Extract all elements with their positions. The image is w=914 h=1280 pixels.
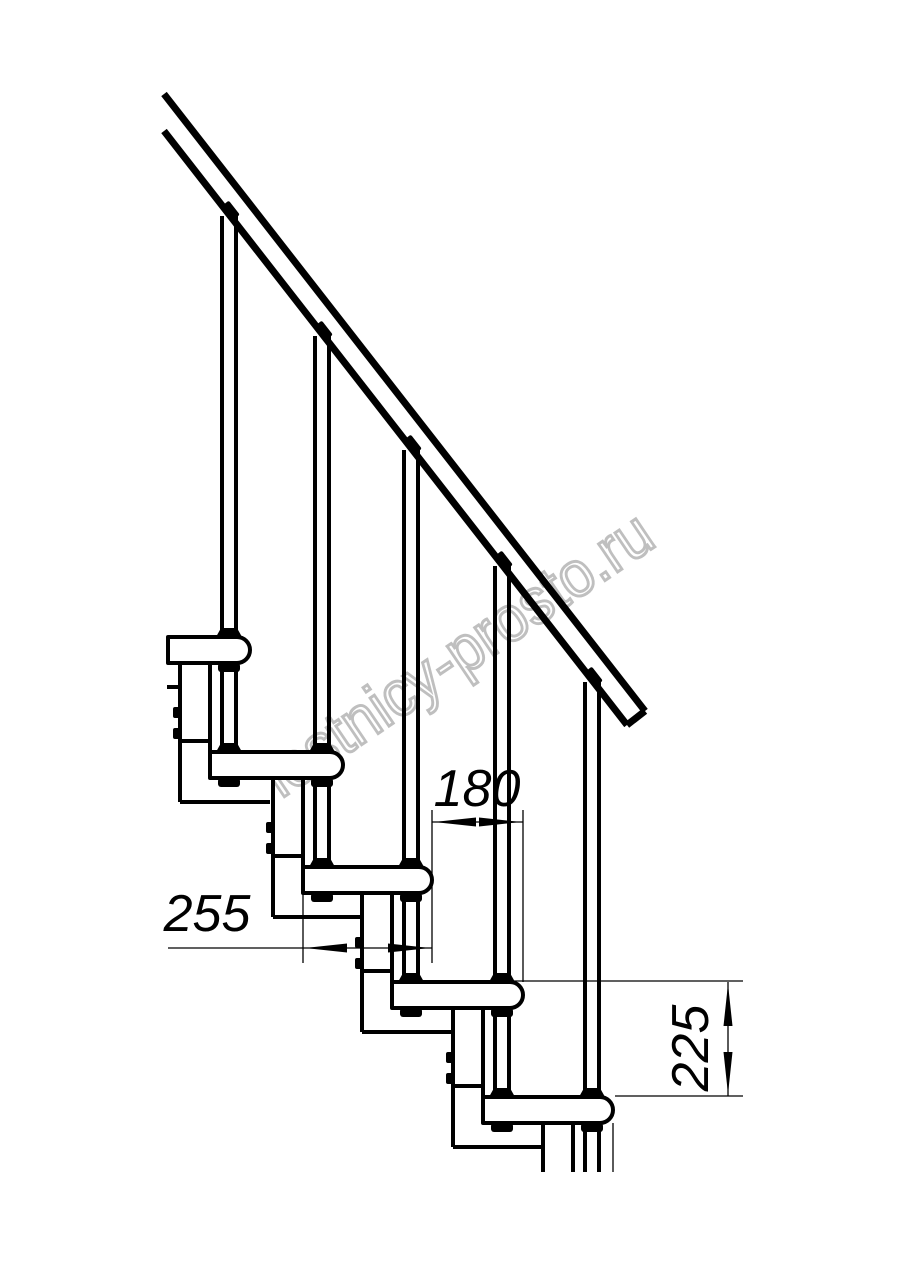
tread	[483, 1097, 613, 1123]
tread	[303, 867, 432, 893]
support-column	[543, 1123, 573, 1172]
bolt-icon	[266, 822, 275, 833]
baluster	[579, 667, 605, 1172]
bolt-icon	[355, 937, 364, 948]
bolt-icon	[446, 1052, 455, 1063]
bolt-icon	[173, 707, 182, 718]
tread	[210, 752, 343, 778]
bolt-icon	[355, 958, 364, 969]
bolt-icon	[266, 843, 275, 854]
staircase-technical-drawing: lestnicy-prosto.ru	[0, 0, 914, 1280]
dimension-label-255: 255	[163, 885, 252, 943]
bolt-icon	[173, 728, 182, 739]
dimension-label-180: 180	[434, 760, 521, 818]
tread	[168, 637, 250, 663]
dimension-label-225: 225	[662, 1004, 720, 1093]
bolt-icon	[446, 1073, 455, 1084]
drawing-page: lestnicy-prosto.ru	[0, 0, 914, 1280]
tread	[392, 982, 523, 1008]
dimension-step-run: 180	[432, 760, 523, 827]
dimension-step-rise: 225	[662, 982, 733, 1096]
